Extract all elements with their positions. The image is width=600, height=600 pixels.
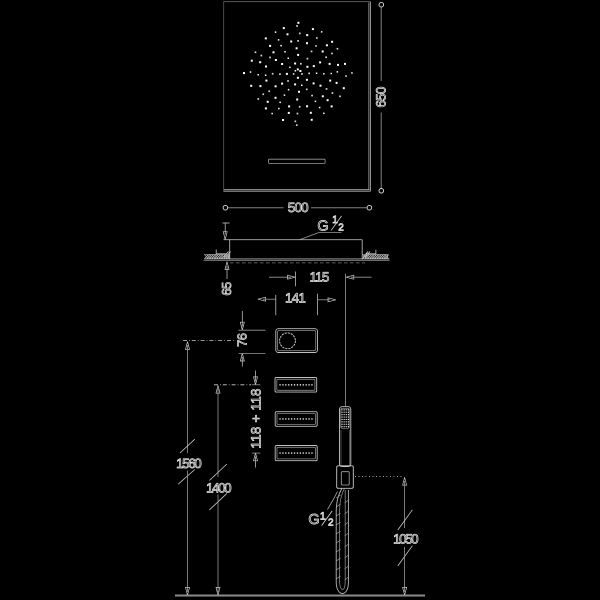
svg-text:500: 500 [288,200,308,215]
svg-text:2: 2 [328,518,334,529]
svg-text:1050: 1050 [393,531,418,546]
svg-text:1400: 1400 [206,480,231,495]
svg-text:650: 650 [373,87,388,107]
svg-text:65: 65 [219,282,234,296]
svg-text:G: G [308,512,319,528]
svg-text:2: 2 [338,223,344,234]
svg-text:1560: 1560 [176,456,201,471]
svg-text:76: 76 [235,333,250,347]
svg-text:141: 141 [285,291,305,306]
svg-text:118 + 118: 118 + 118 [248,388,263,448]
svg-text:115: 115 [309,270,328,285]
